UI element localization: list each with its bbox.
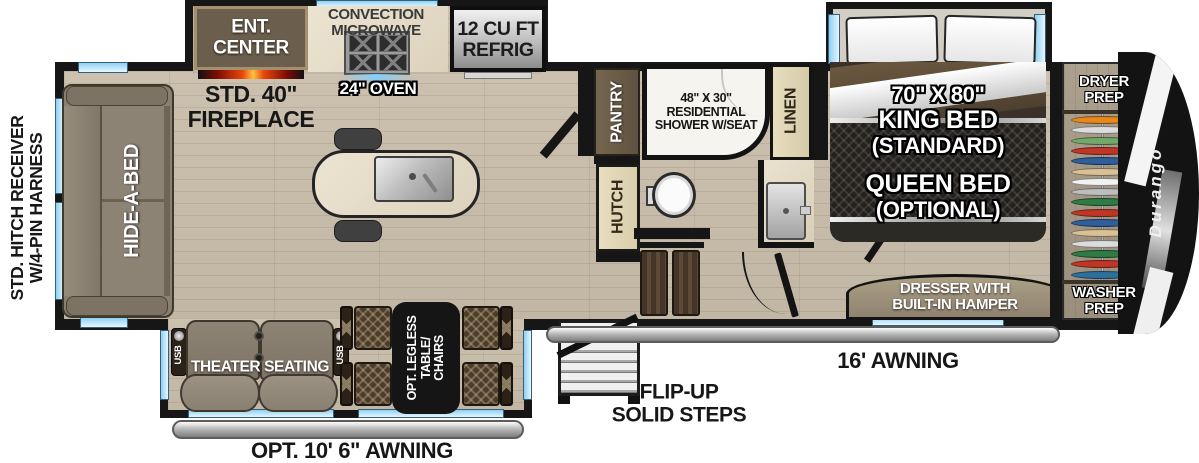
- awning-main-label: 16' AWNING: [808, 349, 988, 373]
- entry-step-mat: [640, 250, 668, 316]
- window: [828, 14, 840, 64]
- step-foot: [558, 396, 570, 404]
- entry-wall: [634, 228, 710, 239]
- sink-drain: [409, 173, 416, 180]
- bed-foot: [830, 222, 1046, 242]
- rv-floorplan: Durango STD. HITCH RECEIVER W/4-PIN HARN…: [0, 0, 1199, 463]
- theater-seat-cushion: [180, 374, 260, 412]
- window: [78, 62, 128, 73]
- fireplace: [198, 70, 304, 79]
- bed-label: 70" X 80" KING BED (STANDARD) QUEEN BED …: [832, 83, 1044, 221]
- bed-size-label: 70" X 80": [832, 83, 1044, 107]
- island-stool: [334, 220, 382, 242]
- chair: [354, 362, 392, 406]
- ent-center-label: ENT. CENTER: [196, 17, 306, 58]
- hutch-label: HUTCH: [609, 162, 626, 252]
- table-label: OPT. LEGLESS TABLE/ CHAIRS: [406, 304, 447, 412]
- recliner-button: [254, 331, 264, 341]
- sofa-label: HIDE-A-BED: [122, 101, 144, 301]
- vanity-faucet: [800, 206, 811, 215]
- microwave-label: CONVECTION MICROWAVE: [301, 7, 451, 39]
- bed-queen-note: (OPTIONAL): [832, 197, 1044, 221]
- brand-logo: Durango: [1147, 122, 1165, 262]
- pantry-label: PANTRY: [608, 67, 625, 157]
- theater-label: THEATER SEATING: [175, 360, 345, 377]
- steps-label: FLIP-UP SOLID STEPS: [589, 381, 769, 426]
- chair: [354, 306, 392, 350]
- bed-pillow: [943, 15, 1036, 65]
- bed-king-label: KING BED: [832, 107, 1044, 134]
- awning-rail-main: [546, 326, 1060, 343]
- hitch-label: STD. HITCH RECEIVER W/4-PIN HARNESS: [8, 43, 46, 373]
- entry-wall: [640, 242, 704, 248]
- burner: [379, 54, 407, 71]
- toilet: [652, 172, 696, 218]
- interior-wall: [596, 252, 640, 262]
- burner: [349, 54, 377, 71]
- chair: [462, 306, 500, 350]
- window: [160, 330, 169, 400]
- dresser-label: DRESSER WITH BUILT-IN HAMPER: [855, 281, 1055, 313]
- washer-prep-label: WASHER PREP: [1064, 285, 1144, 317]
- refrigerator-base: [464, 72, 532, 79]
- awning-rear-label: OPT. 10' 6" AWNING: [212, 439, 492, 463]
- bed-pillow: [845, 15, 938, 65]
- sofa-backrest: [64, 106, 102, 296]
- window: [80, 317, 128, 328]
- oven-label: 24" OVEN: [318, 80, 438, 98]
- chair: [462, 362, 500, 406]
- shower-label: 48" X 30" RESIDENTIAL SHOWER W/SEAT: [646, 92, 766, 133]
- usb-label: USB: [336, 335, 346, 375]
- bed-queen-label: QUEEN BED: [832, 170, 1044, 197]
- sofa-front-edge: [164, 106, 170, 296]
- bed-king-note: (STANDARD): [832, 134, 1044, 158]
- sofa-armrest: [66, 296, 168, 316]
- theater-seat-cushion: [258, 374, 338, 412]
- awning-rail-rear: [172, 420, 524, 439]
- window: [523, 330, 532, 400]
- linen-label: LINEN: [782, 66, 799, 156]
- dryer-prep-label: DRYER PREP: [1064, 74, 1144, 106]
- interior-wall: [812, 62, 828, 160]
- fridge-label: 12 CU FT REFRIG: [451, 19, 545, 61]
- sofa-armrest: [66, 86, 168, 106]
- chair-back: [500, 306, 513, 350]
- usb-label: USB: [174, 335, 184, 375]
- entry-step-mat: [672, 250, 700, 316]
- chair-back: [500, 362, 513, 406]
- interior-wall: [578, 62, 594, 156]
- vanity-drain: [783, 208, 789, 214]
